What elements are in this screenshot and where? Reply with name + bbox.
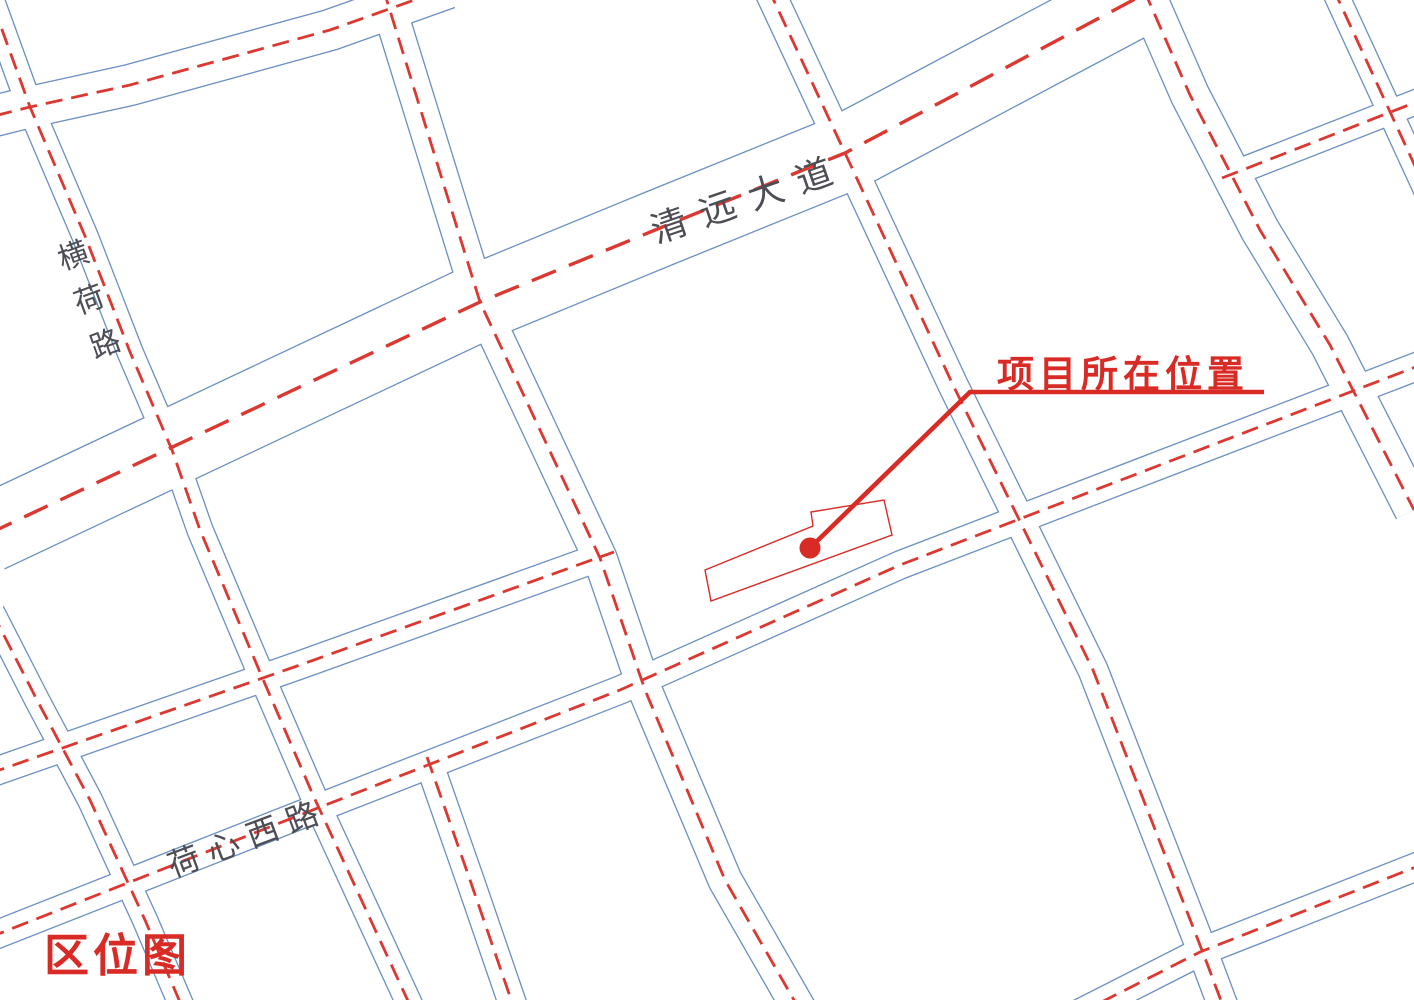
map-legend-title: 区位图 — [44, 919, 191, 984]
project-location-dot — [800, 538, 821, 559]
location-map-canvas: 清远大道 横荷路 荷心西路 项目所在位置 区位图 — [0, 0, 1414, 1000]
project-location-label: 项目所在位置 — [997, 344, 1249, 398]
road-surface-bottomright — [1078, 863, 1414, 1000]
